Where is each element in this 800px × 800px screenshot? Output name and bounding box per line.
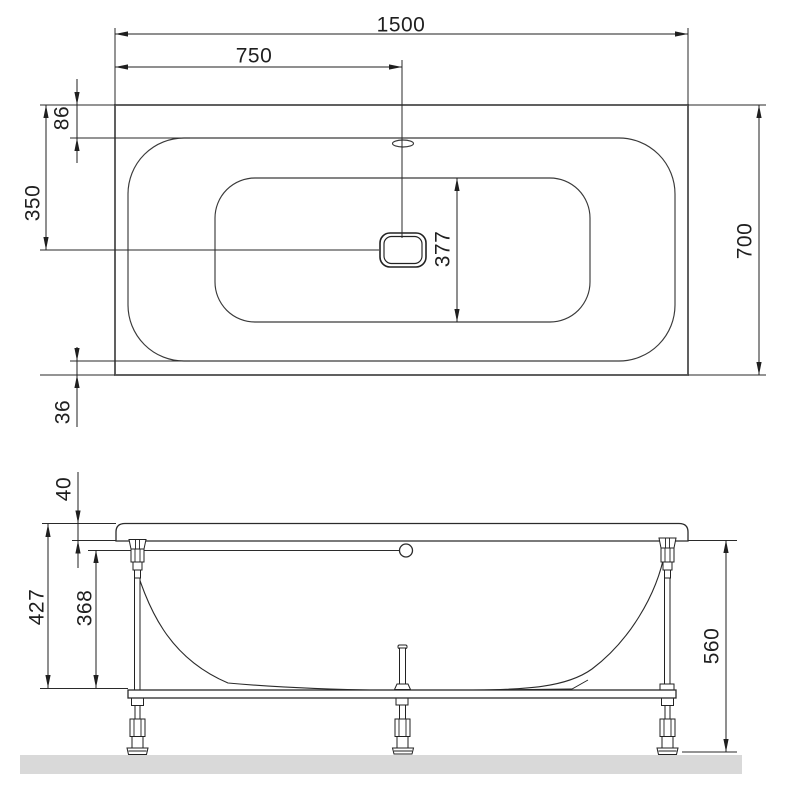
leg-part xyxy=(665,706,670,720)
leg-part xyxy=(400,705,406,719)
front-leg-left xyxy=(127,540,148,755)
dim-arrow xyxy=(723,739,728,752)
dim-arrow xyxy=(389,64,402,69)
leg-foot xyxy=(660,719,675,737)
tub-rim-slab xyxy=(116,524,688,542)
leg-part xyxy=(135,570,141,578)
tub-bowl-profile xyxy=(131,551,665,691)
dim-arrow xyxy=(45,675,50,688)
dim-arrow xyxy=(675,31,688,36)
dim-label-377: 377 xyxy=(432,231,455,268)
dim-label-86: 86 xyxy=(51,106,74,130)
leg-foot xyxy=(130,719,145,737)
leg-part xyxy=(665,570,671,578)
dim-arrow xyxy=(74,92,79,105)
dim-label-700: 700 xyxy=(734,223,757,260)
leg-part xyxy=(397,737,408,749)
frame-rail xyxy=(128,690,676,698)
leg-rail-connector xyxy=(660,684,674,690)
leg-bracket xyxy=(129,540,146,550)
front-view xyxy=(20,524,742,775)
dim-arrow xyxy=(93,675,98,688)
dim-arrow xyxy=(43,237,48,250)
dim-arrow xyxy=(74,375,79,388)
dim-label-350: 350 xyxy=(22,185,45,222)
dim-arrow xyxy=(75,541,80,554)
overflow-hole-front xyxy=(400,544,413,557)
standpipe-base xyxy=(395,684,411,690)
dim-arrow xyxy=(74,138,79,151)
leg-part xyxy=(135,706,140,720)
technical-drawing: 1500 750 86 350 377 700 36 xyxy=(0,0,800,800)
standpipe-body xyxy=(400,648,406,684)
drain-standpipe xyxy=(395,645,411,690)
dim-label-750: 750 xyxy=(236,45,273,68)
dim-arrow xyxy=(756,362,761,375)
leg-strut xyxy=(665,578,671,685)
leg-part xyxy=(131,549,144,562)
dim-arrow xyxy=(115,64,128,69)
dim-arrow xyxy=(75,511,80,524)
leg-part xyxy=(133,562,142,570)
floor-strip xyxy=(20,755,742,774)
dim-arrow xyxy=(115,31,128,36)
dim-label-368: 368 xyxy=(74,590,97,627)
dim-arrow xyxy=(723,540,728,553)
leg-part xyxy=(662,737,673,749)
leg-part xyxy=(132,698,144,706)
leg-part xyxy=(663,562,672,570)
leg-part xyxy=(662,698,674,706)
leg-bracket xyxy=(659,538,676,548)
front-leg-middle xyxy=(393,698,414,754)
leg-foot xyxy=(395,719,410,737)
dim-label-1500: 1500 xyxy=(377,14,426,37)
leg-strut xyxy=(135,578,141,690)
dim-label-560: 560 xyxy=(701,628,724,665)
dim-arrow xyxy=(93,550,98,563)
leg-part xyxy=(396,698,408,705)
dim-label-40: 40 xyxy=(53,477,76,501)
dim-arrow xyxy=(45,524,50,537)
dim-label-427: 427 xyxy=(26,589,49,626)
drawing-canvas: 1500 750 86 350 377 700 36 xyxy=(0,0,800,800)
dim-arrow xyxy=(756,105,761,118)
leg-part xyxy=(132,737,143,749)
front-view-dimensions: 40 427 368 560 xyxy=(26,472,738,752)
dim-arrow xyxy=(74,348,79,361)
leg-part xyxy=(661,548,674,562)
dim-arrow xyxy=(43,105,48,118)
dim-label-36: 36 xyxy=(52,400,75,424)
